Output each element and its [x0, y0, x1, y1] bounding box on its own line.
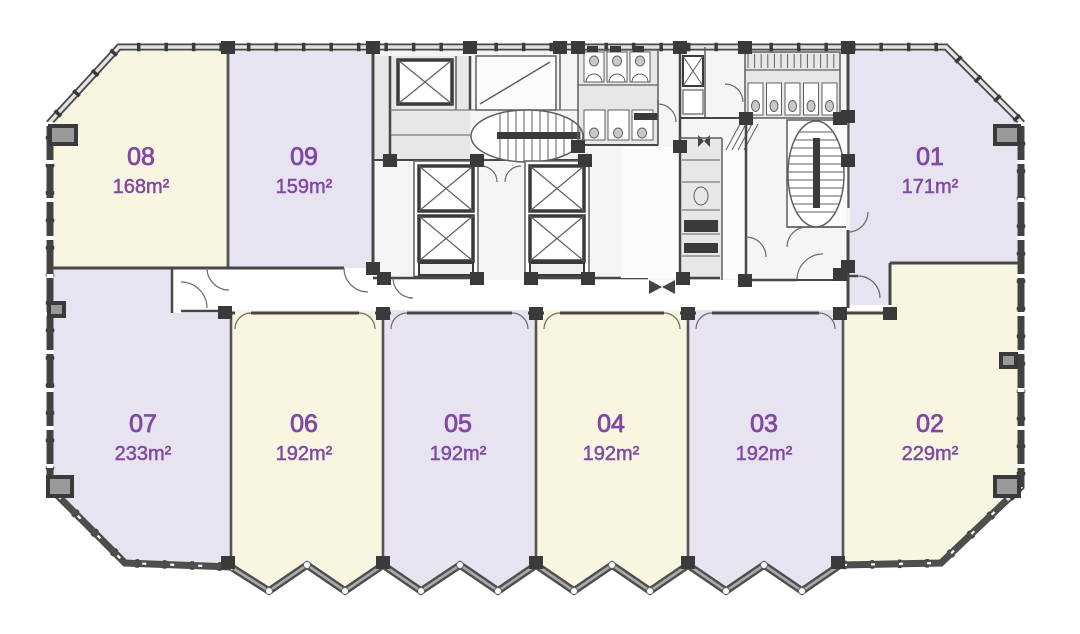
svg-text:192m²: 192m² [583, 443, 640, 465]
svg-text:08: 08 [127, 143, 155, 171]
svg-text:192m²: 192m² [276, 443, 333, 465]
svg-text:159m²: 159m² [276, 176, 333, 198]
svg-text:229m²: 229m² [902, 443, 959, 465]
svg-text:07: 07 [129, 410, 157, 438]
svg-text:168m²: 168m² [113, 176, 170, 198]
svg-text:192m²: 192m² [430, 443, 487, 465]
svg-text:192m²: 192m² [736, 443, 793, 465]
svg-text:03: 03 [750, 410, 778, 438]
svg-text:04: 04 [597, 410, 625, 438]
svg-text:233m²: 233m² [115, 443, 172, 465]
svg-text:09: 09 [290, 143, 318, 171]
svg-text:06: 06 [290, 410, 318, 438]
svg-text:02: 02 [916, 410, 944, 438]
svg-text:01: 01 [916, 143, 944, 171]
svg-text:171m²: 171m² [902, 176, 959, 198]
svg-text:05: 05 [444, 410, 472, 438]
